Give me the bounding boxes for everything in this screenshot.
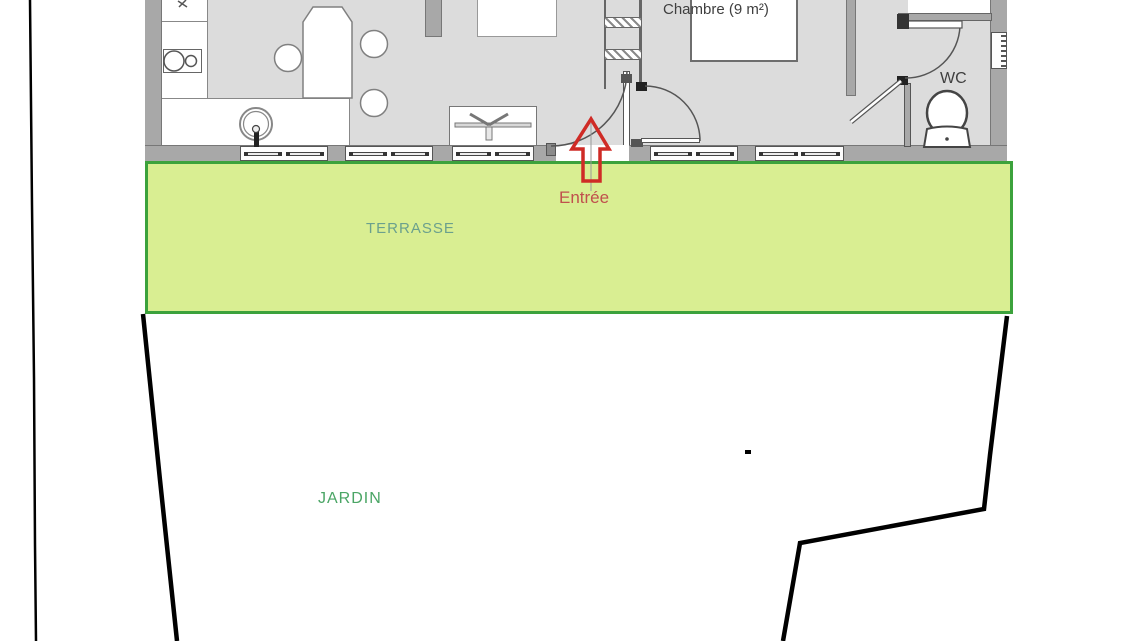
terrasse-area: TERRASSE — [145, 161, 1013, 314]
window-pane — [349, 152, 387, 156]
window-pane — [801, 152, 839, 156]
kitchen-counter-bottom — [162, 98, 350, 145]
cabinet-shelf-bottom — [604, 49, 642, 60]
chambre-label: Chambre (9 m²) — [663, 1, 769, 18]
floor-plan-canvas: TERRASSE — [0, 0, 1139, 641]
cabinet-line-right — [639, 0, 642, 89]
jardin-mark — [745, 450, 751, 454]
jardin-boundary-right — [783, 316, 1007, 641]
counter-divider — [162, 21, 208, 22]
chambre-door-hinge — [636, 82, 647, 91]
wall-bathroom-door — [898, 13, 992, 21]
property-boundary-line — [30, 0, 36, 641]
wc-window-hatch — [1001, 34, 1007, 67]
jardin-boundary-left — [143, 314, 177, 641]
window — [650, 146, 738, 161]
outer-wall-right — [990, 0, 1007, 163]
wc-door-hinge — [897, 76, 908, 85]
jardin-label: JARDIN — [318, 490, 382, 508]
window-pane — [654, 152, 692, 156]
entree-label: Entrée — [559, 188, 609, 208]
entrance-pier-left-cap — [546, 143, 556, 156]
wc-window — [991, 32, 1007, 69]
entrance-door-frame-cap — [621, 74, 632, 83]
window-pane — [696, 152, 734, 156]
wall-wc-left — [904, 83, 911, 147]
window-pane — [456, 152, 491, 156]
window-pane — [391, 152, 429, 156]
wc-label: WC — [940, 70, 967, 88]
window-pane — [759, 152, 797, 156]
cabinet-line-left — [604, 0, 606, 89]
stove-icon — [163, 49, 202, 73]
window-pane — [244, 152, 282, 156]
wall-chambre-right — [846, 0, 856, 96]
chambre-door-leaf — [641, 138, 700, 143]
outer-wall-left — [145, 0, 162, 163]
window — [452, 146, 534, 161]
window — [755, 146, 844, 161]
window — [345, 146, 433, 161]
wall-stub-top — [425, 0, 442, 37]
cabinet-shelf-top — [604, 17, 642, 28]
rug-table-rect — [477, 0, 557, 37]
window-pane — [286, 152, 324, 156]
window-pane — [495, 152, 530, 156]
window — [240, 146, 328, 161]
sideboard — [449, 106, 537, 146]
terrasse-label: TERRASSE — [366, 220, 455, 237]
bathroom-floor-strip — [908, 0, 990, 13]
